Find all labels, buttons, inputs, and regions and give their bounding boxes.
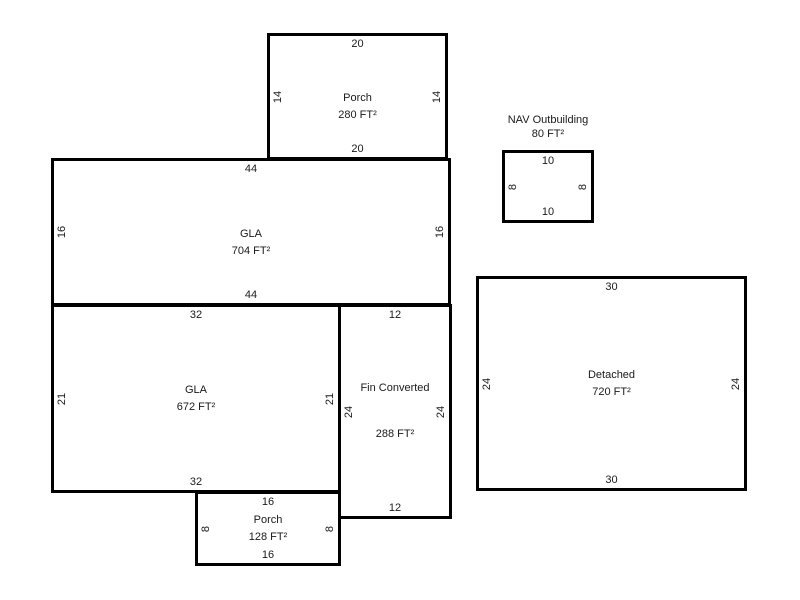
dimension-label: 8	[507, 175, 519, 199]
room-area: 80 FT²	[472, 127, 624, 141]
dimension-label: 21	[324, 387, 336, 411]
dimension-label: 44	[54, 289, 448, 301]
dimension-label: 32	[54, 309, 338, 321]
dimension-label: 14	[272, 85, 284, 109]
dimension-label: 12	[341, 309, 449, 321]
room-area: 288 FT²	[376, 426, 415, 443]
room-name: NAV Outbuilding	[472, 113, 624, 127]
room-nav-outbuilding: 10 10 8 8	[502, 150, 594, 223]
dimension-label: 14	[431, 85, 443, 109]
room-label: GLA 672 FT²	[54, 307, 338, 490]
room-label-nav-outbuilding: NAV Outbuilding 80 FT²	[472, 113, 624, 141]
dimension-label: 24	[435, 400, 447, 424]
room-label: Fin Converted 288 FT²	[341, 307, 449, 516]
dimension-label: 20	[270, 38, 445, 50]
room-porch-top: 20 20 14 14 Porch 280 FT²	[267, 33, 448, 160]
dimension-label: 16	[434, 220, 446, 244]
dimension-label: 16	[198, 496, 338, 508]
floor-plan-sketch: 20 20 14 14 Porch 280 FT² 44 44 16 16 GL…	[0, 0, 800, 600]
room-name: Fin Converted	[360, 380, 429, 397]
room-gla-main: 44 44 16 16 GLA 704 FT²	[51, 158, 451, 306]
room-fin-converted: 12 12 24 24 Fin Converted 288 FT²	[338, 304, 452, 519]
room-label: Detached 720 FT²	[479, 279, 744, 488]
dimension-label: 21	[56, 387, 68, 411]
room-label: GLA 704 FT²	[54, 161, 448, 303]
room-detached: 30 30 24 24 Detached 720 FT²	[476, 276, 747, 491]
dimension-label: 16	[198, 549, 338, 561]
dimension-label: 30	[479, 281, 744, 293]
room-area: 128 FT²	[249, 529, 288, 546]
room-area: 720 FT²	[592, 384, 631, 401]
room-porch-bottom: 16 16 8 8 Porch 128 FT²	[195, 491, 341, 566]
dimension-label: 12	[341, 502, 449, 514]
dimension-label: 20	[270, 143, 445, 155]
dimension-label: 32	[54, 476, 338, 488]
dimension-label: 30	[479, 474, 744, 486]
dimension-label: 10	[505, 155, 591, 167]
room-label: Porch 280 FT²	[270, 36, 445, 157]
dimension-label: 8	[577, 175, 589, 199]
dimension-label: 10	[505, 206, 591, 218]
dimension-label: 24	[481, 372, 493, 396]
dimension-label: 24	[730, 372, 742, 396]
room-name: GLA	[240, 226, 262, 243]
room-area: 704 FT²	[232, 243, 271, 260]
room-name: GLA	[185, 382, 207, 399]
dimension-label: 8	[324, 517, 336, 541]
room-name: Porch	[343, 90, 372, 107]
dimension-label: 16	[56, 220, 68, 244]
room-gla-lower: 32 32 21 21 GLA 672 FT²	[51, 304, 341, 493]
dimension-label: 24	[343, 400, 355, 424]
room-area: 672 FT²	[177, 399, 216, 416]
room-name: Porch	[254, 512, 283, 529]
room-area: 280 FT²	[338, 107, 377, 124]
dimension-label: 44	[54, 163, 448, 175]
room-name: Detached	[588, 367, 635, 384]
dimension-label: 8	[200, 517, 212, 541]
